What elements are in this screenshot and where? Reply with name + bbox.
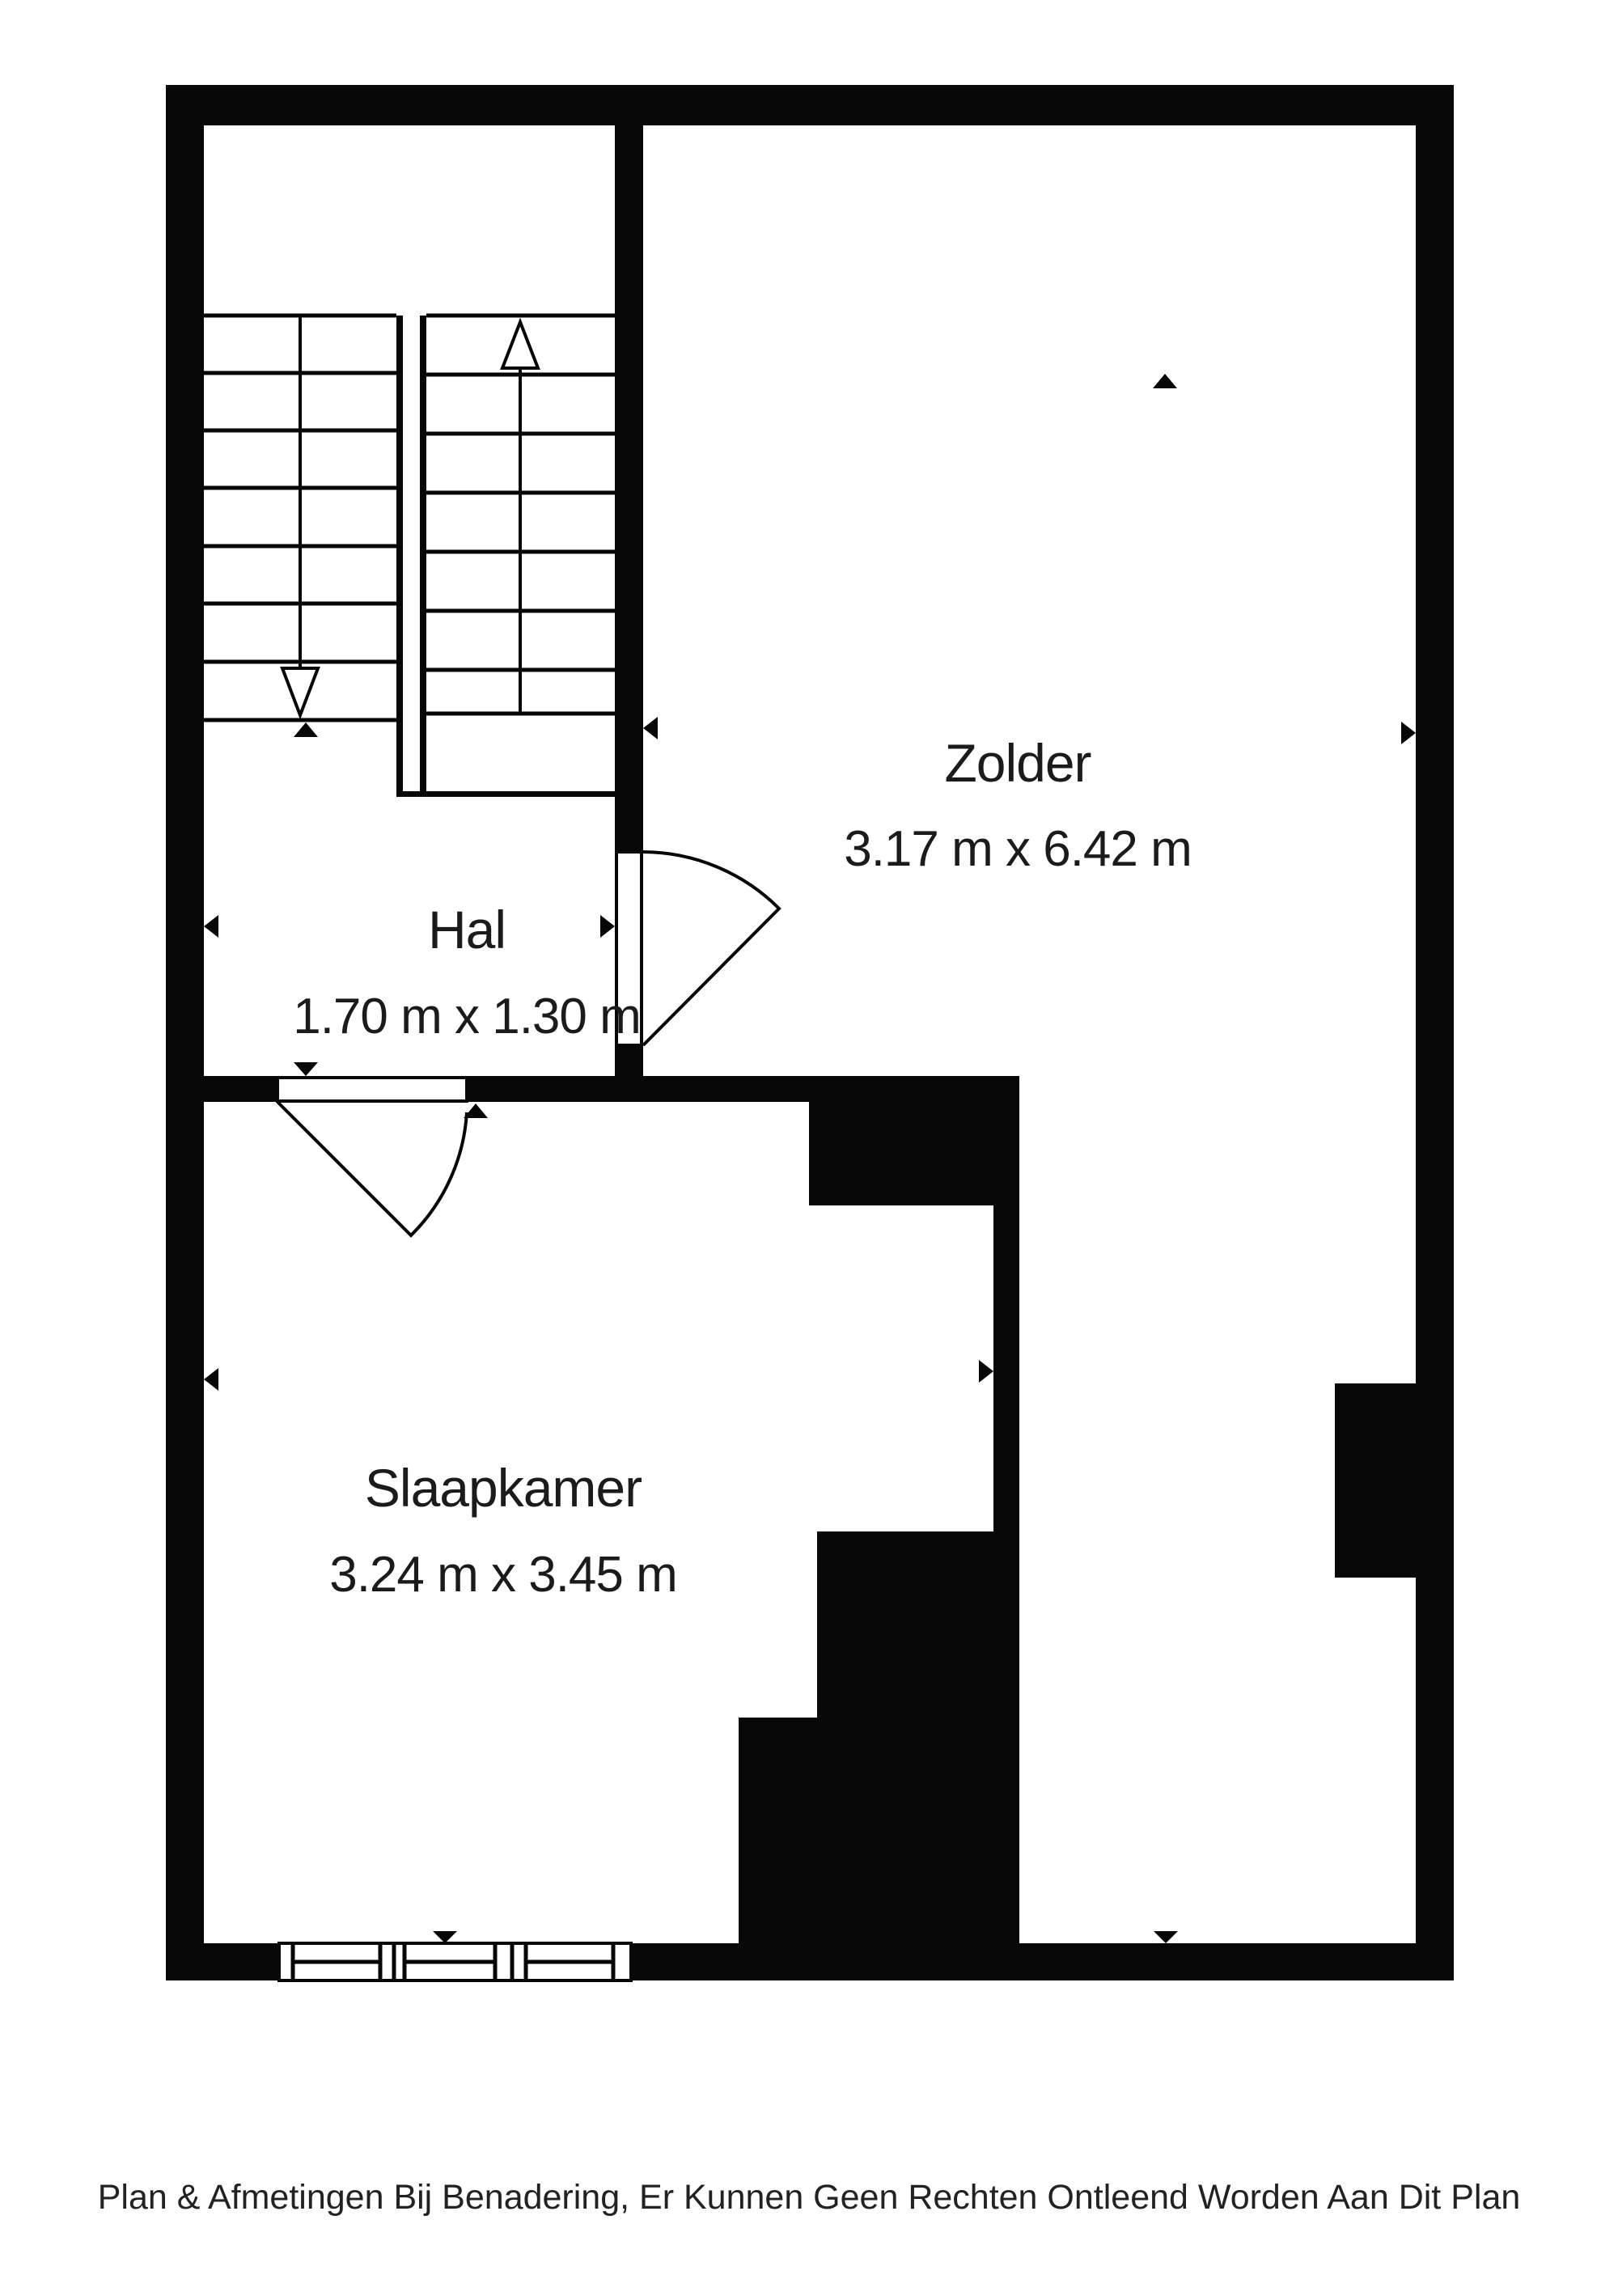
stairs-base-line bbox=[396, 791, 615, 797]
wall-top bbox=[166, 85, 1454, 125]
hal-bottom-wall-left bbox=[204, 1076, 277, 1102]
room-dims-slaapkamer: 3.24 m x 3.45 m bbox=[329, 1547, 677, 1603]
door-swing-arc bbox=[643, 852, 779, 1045]
chimney-notch bbox=[1335, 1383, 1416, 1578]
wall-right bbox=[1416, 85, 1454, 1980]
door-hal-to-slaapkamer bbox=[277, 1078, 467, 1235]
interior-wall-stairs-upper bbox=[615, 125, 643, 852]
wall-marker-icon bbox=[643, 717, 658, 739]
disclaimer-text: Plan & Afmetingen Bij Benadering, Er Kun… bbox=[98, 2178, 1521, 2217]
door-leaf bbox=[277, 1078, 467, 1101]
stairs-divider-left-line bbox=[396, 316, 403, 797]
hal-bottom-wall-right bbox=[467, 1076, 1019, 1102]
wall-marker-icon bbox=[1401, 722, 1416, 744]
door-hal-to-zolder bbox=[616, 852, 779, 1045]
floorplan-page: Zolder 3.17 m x 6.42 m Hal 1.70 m x 1.30… bbox=[0, 0, 1618, 2296]
wall-block-lower bbox=[739, 1718, 1019, 1980]
wall-marker-icon bbox=[1153, 374, 1177, 388]
wall-left bbox=[166, 85, 204, 1980]
room-dims-hal: 1.70 m x 1.30 m bbox=[293, 989, 641, 1044]
window-bottom bbox=[279, 1943, 631, 1980]
stairs-divider-right-line bbox=[420, 316, 426, 797]
room-labels: Zolder 3.17 m x 6.42 m Hal 1.70 m x 1.30… bbox=[293, 733, 1192, 1603]
wall-marker-icon bbox=[204, 915, 218, 938]
wall-divider-vertical bbox=[993, 1204, 1019, 1533]
wall-marker-icon bbox=[204, 1368, 218, 1391]
wall-block-middle bbox=[817, 1531, 1019, 1719]
interior-walls bbox=[204, 125, 1416, 1980]
wall-marker-icon bbox=[433, 1931, 457, 1943]
wall-marker-icon bbox=[294, 722, 318, 737]
room-label-slaapkamer: Slaapkamer bbox=[365, 1458, 642, 1518]
wall-marker-icon bbox=[979, 1360, 993, 1383]
floorplan-drawing: Zolder 3.17 m x 6.42 m Hal 1.70 m x 1.30… bbox=[0, 0, 1618, 2296]
staircase bbox=[204, 316, 615, 797]
wall-marker-icon bbox=[1154, 1931, 1178, 1943]
stairs-up-arrow-icon bbox=[502, 322, 538, 368]
stairs-down-arrow-icon bbox=[282, 668, 318, 715]
room-label-zolder: Zolder bbox=[944, 733, 1091, 793]
room-label-hal: Hal bbox=[428, 900, 506, 959]
wall-marker-icon bbox=[600, 915, 615, 938]
wall-block-upper bbox=[809, 1102, 1019, 1205]
wall-marker-icon bbox=[294, 1062, 318, 1076]
door-swing-arc bbox=[277, 1102, 467, 1235]
room-dims-zolder: 3.17 m x 6.42 m bbox=[844, 821, 1192, 877]
wall-marker-icon bbox=[464, 1104, 488, 1118]
stairs-divider bbox=[396, 316, 615, 797]
